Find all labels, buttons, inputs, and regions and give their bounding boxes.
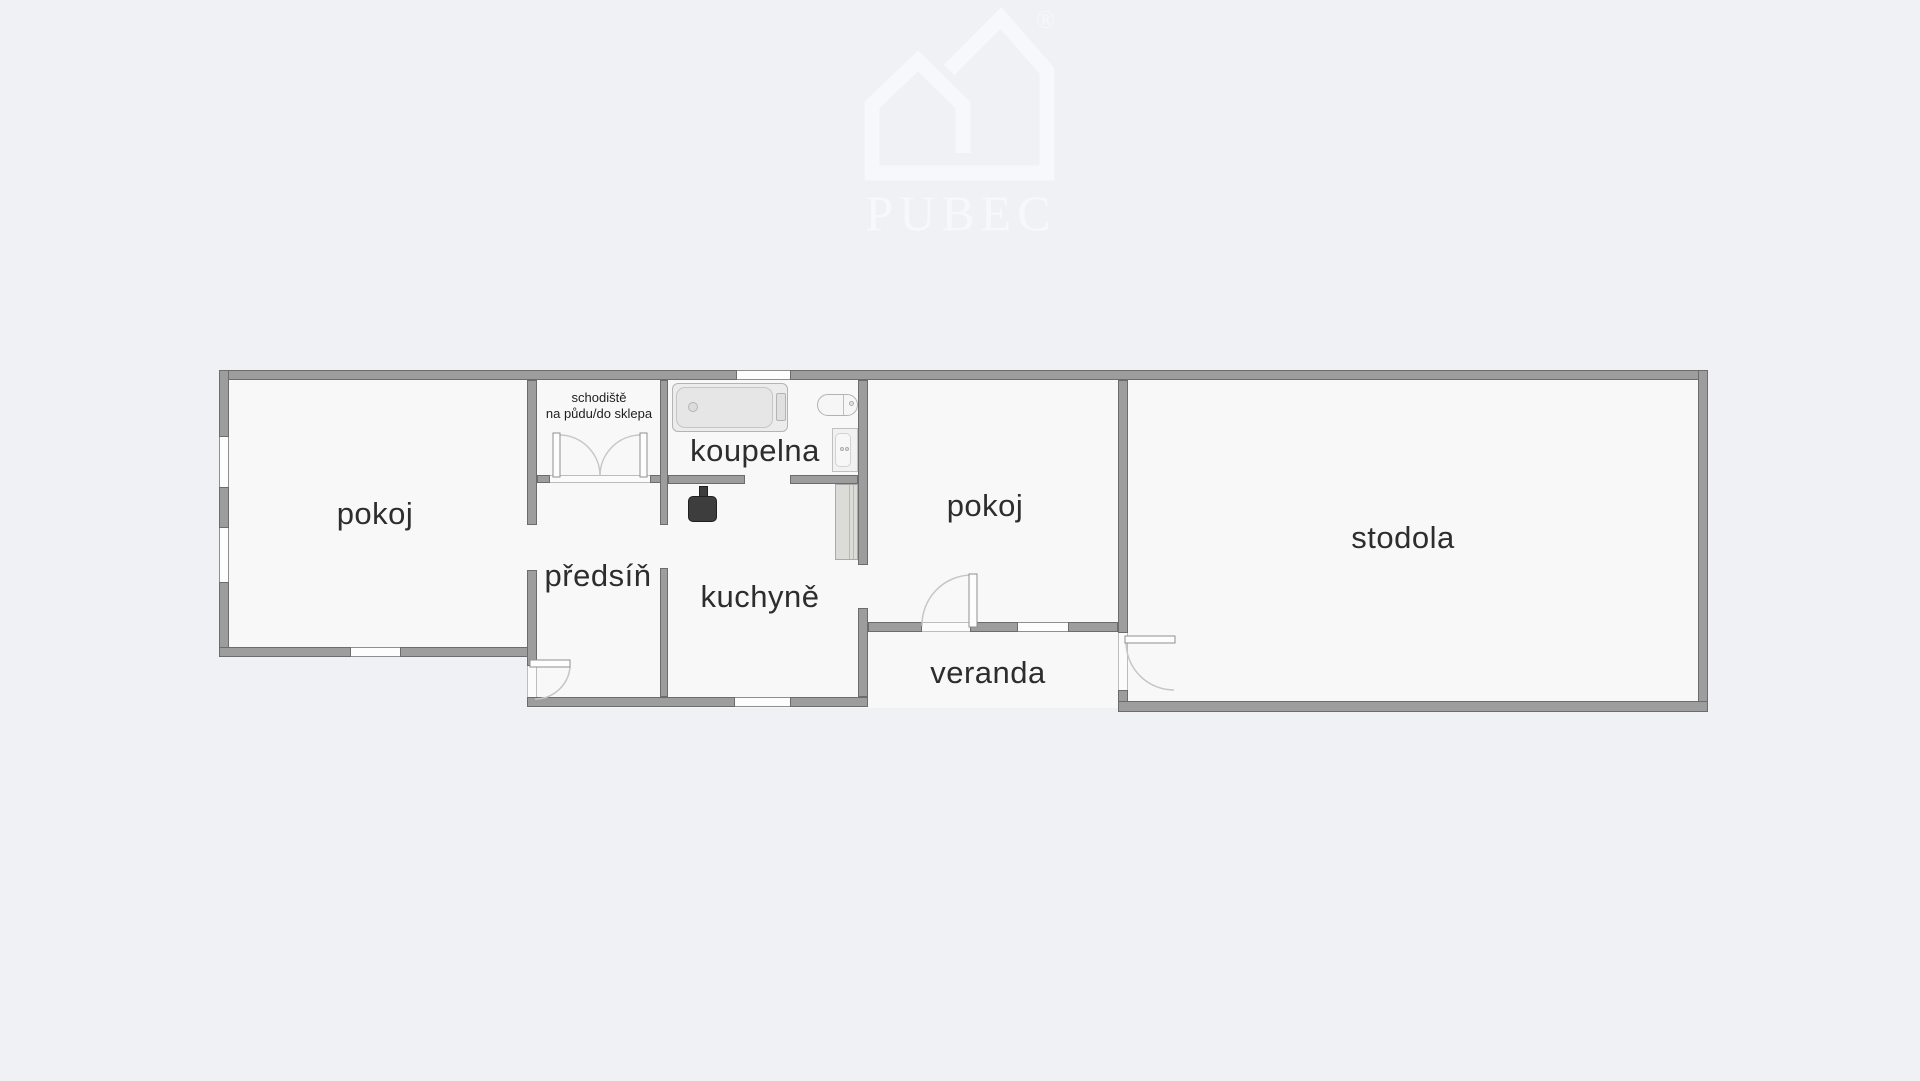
door-arc (535, 667, 570, 699)
room-label-pokoj-right: pokoj (947, 488, 1024, 524)
room-label-pokoj-left: pokoj (337, 496, 414, 532)
door-leaf (969, 574, 977, 627)
schodiste-line2: na půdu/do sklepa (546, 406, 652, 422)
stove-icon (688, 496, 717, 522)
washbasin-tap-dot (840, 447, 844, 451)
washbasin-tap-dot (845, 447, 849, 451)
door-arc (560, 435, 600, 476)
toilet-tank-line (843, 395, 844, 415)
room-label-stodola: stodola (1351, 520, 1454, 556)
room-label-kuchyne: kuchyně (701, 579, 820, 615)
room-label-koupelna: koupelna (690, 433, 820, 469)
kitchen-cabinet-line (853, 485, 854, 559)
room-label-predsin: předsíň (545, 558, 652, 594)
bathtub-headrest-icon (776, 393, 786, 421)
door-symbols-layer (0, 0, 1920, 1081)
schodiste-line1: schodiště (546, 390, 652, 406)
kitchen-cabinet-line (849, 485, 850, 559)
room-label-veranda: veranda (930, 655, 1046, 691)
bathtub-drain-icon (688, 402, 698, 412)
floor-plan-page: { "watermark": { "brand": "PUBEC", "regi… (0, 0, 1920, 1081)
door-arc (600, 435, 640, 476)
door-leaf (1125, 636, 1175, 643)
door-leaf (553, 433, 560, 477)
room-label-schodiste: schodiště na půdu/do sklepa (546, 390, 652, 422)
door-leaf (640, 433, 647, 477)
kitchen-cabinet-icon (835, 484, 858, 560)
door-arc (1126, 643, 1174, 690)
door-arc (922, 575, 971, 626)
toilet-flush-button (849, 401, 854, 406)
door-leaf (530, 660, 570, 667)
